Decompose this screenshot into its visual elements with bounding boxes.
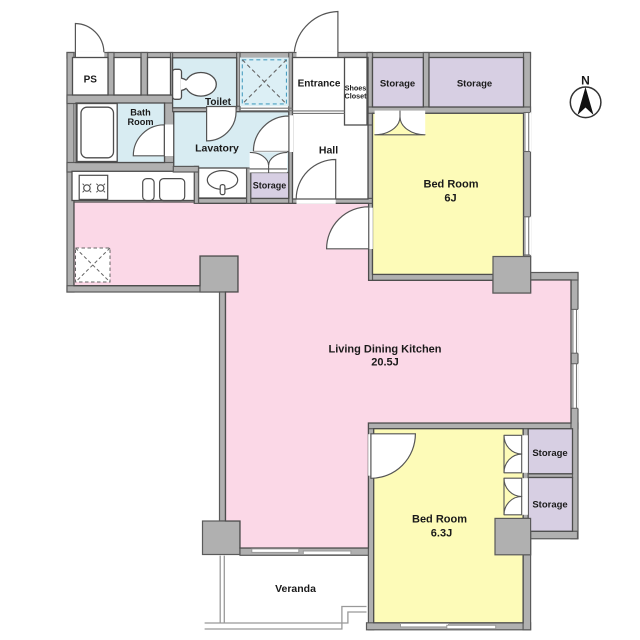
svg-text:Entrance: Entrance bbox=[298, 78, 341, 89]
svg-text:Bath: Bath bbox=[130, 107, 151, 117]
svg-text:Veranda: Veranda bbox=[275, 583, 316, 595]
svg-text:Bed Room: Bed Room bbox=[424, 179, 479, 191]
svg-text:Lavatory: Lavatory bbox=[195, 142, 239, 154]
svg-text:Storage: Storage bbox=[380, 79, 415, 90]
svg-text:Storage: Storage bbox=[532, 448, 567, 459]
svg-text:Toilet: Toilet bbox=[205, 97, 232, 108]
svg-text:Room: Room bbox=[127, 117, 153, 127]
svg-text:Closet: Closet bbox=[345, 91, 368, 100]
svg-text:Storage: Storage bbox=[253, 181, 287, 191]
svg-text:20.5J: 20.5J bbox=[371, 357, 399, 369]
svg-text:PS: PS bbox=[84, 75, 98, 86]
svg-text:Storage: Storage bbox=[532, 500, 567, 511]
svg-text:Hall: Hall bbox=[319, 144, 338, 156]
svg-text:N: N bbox=[581, 74, 590, 88]
svg-text:6J: 6J bbox=[444, 193, 456, 205]
svg-text:Living Dining Kitchen: Living Dining Kitchen bbox=[328, 344, 441, 356]
svg-text:Storage: Storage bbox=[457, 79, 492, 90]
svg-text:6.3J: 6.3J bbox=[431, 528, 452, 540]
svg-text:Bed Room: Bed Room bbox=[412, 514, 467, 526]
